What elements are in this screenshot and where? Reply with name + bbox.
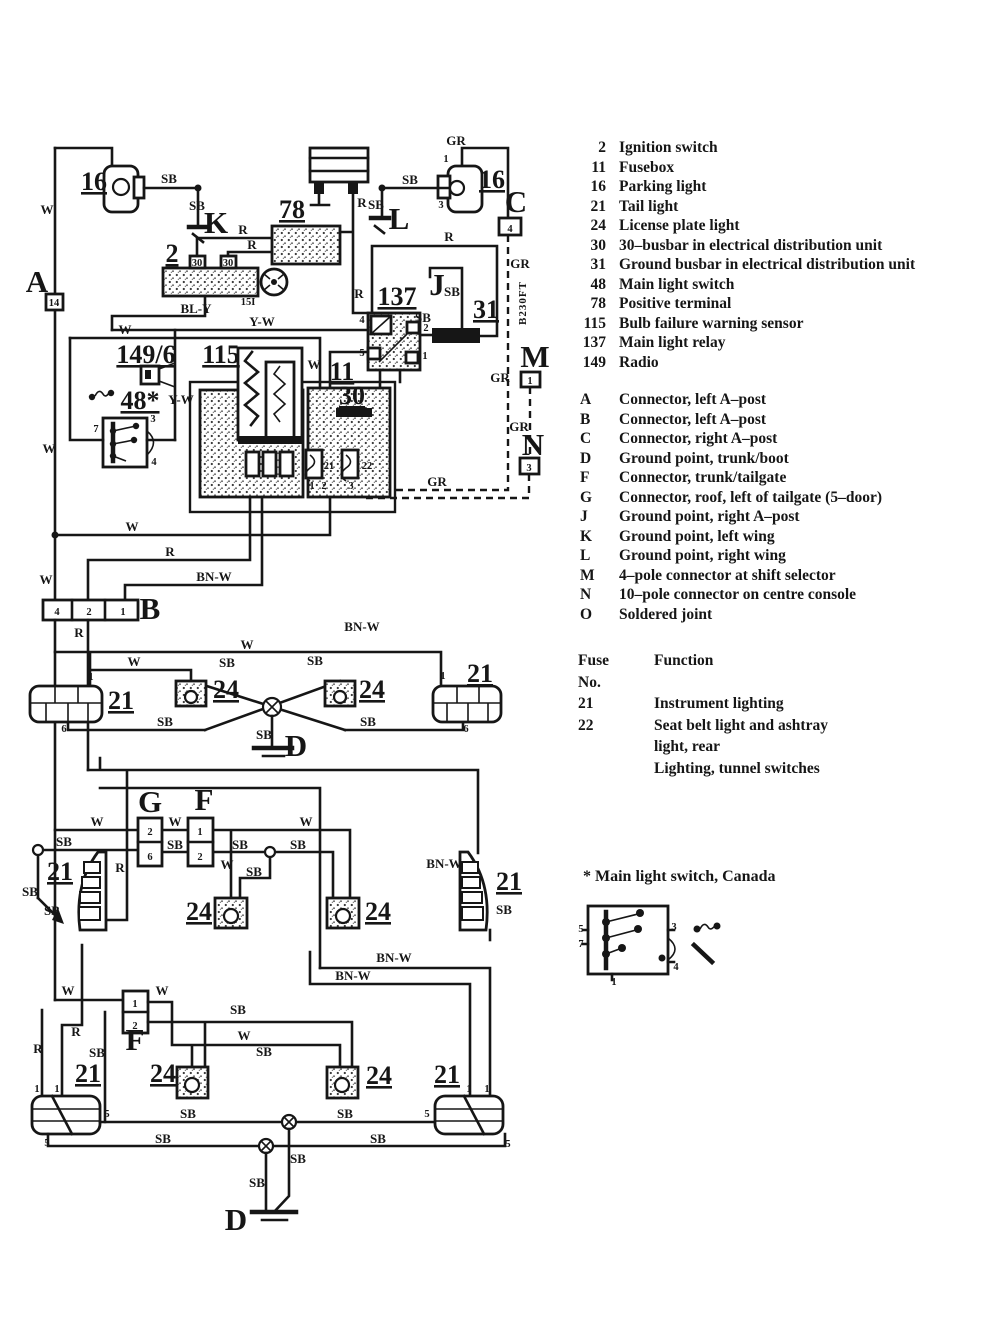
label-gr: GR bbox=[446, 133, 466, 148]
legend-connector-row-id: A bbox=[578, 390, 608, 410]
label-sb: SB bbox=[402, 172, 418, 187]
label-21: 21 bbox=[75, 1059, 101, 1088]
label-w: W bbox=[40, 572, 53, 587]
legend-connector-row: DGround point, trunk/boot bbox=[578, 449, 974, 469]
label-b230ft: B230FT bbox=[517, 281, 529, 325]
legend-connector-row: AConnector, left A–post bbox=[578, 390, 974, 410]
label-sb: SB bbox=[161, 171, 177, 186]
label-4: 4 bbox=[507, 224, 513, 235]
label-24: 24 bbox=[213, 675, 239, 704]
label-21: 21 bbox=[47, 857, 73, 886]
legend-component-row: 3030–busbar in electrical distribution u… bbox=[578, 236, 974, 256]
legend-component-row-id: 115 bbox=[578, 314, 606, 334]
legend-connector-row-label: Connector, left A–post bbox=[619, 390, 974, 410]
label-bn-w: BN-W bbox=[344, 619, 379, 634]
legend-component-row-label: Fusebox bbox=[619, 158, 974, 178]
legend-component-row: 78Positive terminal bbox=[578, 294, 974, 314]
label-21: 21 bbox=[324, 461, 335, 472]
legend-components: 2Ignition switch11Fusebox16Parking light… bbox=[578, 138, 974, 372]
legend-component-row-id: 11 bbox=[578, 158, 606, 178]
legend-component-row: 16Parking light bbox=[578, 177, 974, 197]
label-r: R bbox=[74, 625, 84, 640]
label-4: 4 bbox=[54, 607, 60, 618]
label-sb: SB bbox=[180, 1106, 196, 1121]
legend-connector-row-id: O bbox=[578, 605, 608, 625]
label-sb: SB bbox=[89, 1045, 105, 1060]
label-w: W bbox=[238, 1028, 251, 1043]
label-137: 137 bbox=[378, 282, 417, 311]
label-2: 2 bbox=[132, 1021, 137, 1032]
fuse-row: 22Seat belt light and ashtraylight, rear… bbox=[578, 715, 974, 780]
label-w: W bbox=[169, 814, 182, 829]
label-24: 24 bbox=[359, 675, 385, 704]
label-24: 24 bbox=[150, 1059, 176, 1088]
rear-row2 bbox=[33, 758, 490, 968]
function-col-header: Function bbox=[654, 650, 974, 693]
label-w: W bbox=[62, 983, 75, 998]
label-sb: SB bbox=[219, 655, 235, 670]
label-5: 5 bbox=[359, 348, 364, 359]
label-sb: SB bbox=[167, 837, 183, 852]
label-16: 16 bbox=[479, 165, 505, 194]
legend-connector-row-label: Connector, left A–post bbox=[619, 410, 974, 430]
label-r: R bbox=[33, 1041, 43, 1056]
label-30: 30 bbox=[192, 258, 203, 269]
label-4: 4 bbox=[151, 457, 157, 468]
label-sb: SB bbox=[56, 834, 72, 849]
label-14: 14 bbox=[49, 298, 60, 309]
wiring-diagram-page: 16SBSBKW2303015IBL-YRR78RRGR16SBSBLC413G… bbox=[0, 0, 981, 1331]
label-bl-y: BL-Y bbox=[180, 301, 212, 316]
legend-component-row-label: Tail light bbox=[619, 197, 974, 217]
label-24: 24 bbox=[365, 897, 391, 926]
label-w: W bbox=[119, 322, 132, 337]
label-y-w: Y-W bbox=[168, 392, 194, 407]
label-sb: SB bbox=[230, 1002, 246, 1017]
legend-component-row-id: 31 bbox=[578, 255, 606, 275]
label-1: 1 bbox=[132, 999, 137, 1010]
legend-connector-row: M4–pole connector at shift selector bbox=[578, 566, 974, 586]
legend-connector-row-label: Ground point, right wing bbox=[619, 546, 974, 566]
label-sb: SB bbox=[22, 884, 38, 899]
label-5: 5 bbox=[104, 1109, 109, 1120]
label-21: 21 bbox=[496, 867, 522, 896]
label-5: 5 bbox=[505, 1139, 510, 1150]
label-gr: GR bbox=[490, 370, 510, 385]
label-30: 30 bbox=[223, 258, 234, 269]
label-m: M bbox=[520, 339, 549, 374]
label-w: W bbox=[126, 519, 139, 534]
label-sb: SB bbox=[189, 198, 205, 213]
legend-connector-row-label: Connector, roof, left of tailgate (5–doo… bbox=[619, 488, 974, 508]
label-sb: SB bbox=[290, 837, 306, 852]
label-2: 2 bbox=[86, 607, 91, 618]
legend-component-row-id: 30 bbox=[578, 236, 606, 256]
legend-component-row-label: License plate light bbox=[619, 216, 974, 236]
legend-component-row-label: Main light relay bbox=[619, 333, 974, 353]
label-w: W bbox=[91, 814, 104, 829]
label-6: 6 bbox=[61, 724, 66, 735]
label-r: R bbox=[238, 222, 248, 237]
label-r: R bbox=[247, 237, 257, 252]
label-r: R bbox=[354, 286, 364, 301]
label-r: R bbox=[444, 229, 454, 244]
legend-component-row-label: Ignition switch bbox=[619, 138, 974, 158]
label-sb: SB bbox=[249, 1175, 265, 1190]
label-2: 2 bbox=[166, 239, 179, 268]
legend-footnote: * Main light switch, Canada bbox=[583, 868, 775, 886]
fuse-number: 22 bbox=[578, 715, 654, 780]
label-gr: GR bbox=[427, 474, 447, 489]
label-w: W bbox=[128, 654, 141, 669]
label-2: 2 bbox=[147, 827, 152, 838]
label-sb: SB bbox=[290, 1151, 306, 1166]
legend-connector-row: OSoldered joint bbox=[578, 605, 974, 625]
legend-connectors: AConnector, left A–postBConnector, left … bbox=[578, 390, 974, 624]
label-1: 1 bbox=[88, 672, 93, 683]
fuse-col-header-no: No. bbox=[578, 672, 654, 694]
label-1: 1 bbox=[34, 1084, 39, 1095]
label-gr: GR bbox=[510, 256, 530, 271]
legend-component-row-label: Ground busbar in electrical distribution… bbox=[619, 255, 974, 275]
legend-connector-row-id: K bbox=[578, 527, 608, 547]
label-2: 2 bbox=[321, 481, 326, 492]
legend-connector-row-label: 10–pole connector on centre console bbox=[619, 585, 974, 605]
fuse-table-header: Fuse No. Function bbox=[578, 650, 974, 693]
label-sb: SB bbox=[157, 714, 173, 729]
label-sb: SB bbox=[360, 714, 376, 729]
legend-connector-row-label: Ground point, left wing bbox=[619, 527, 974, 547]
legend-connector-row-label: Connector, right A–post bbox=[619, 429, 974, 449]
legend-component-row: 21Tail light bbox=[578, 197, 974, 217]
fuse-col-header: Fuse bbox=[578, 650, 654, 672]
legend-connector-row-label: Soldered joint bbox=[619, 605, 974, 625]
label-w: W bbox=[43, 441, 56, 456]
legend-connector-row: GConnector, roof, left of tailgate (5–do… bbox=[578, 488, 974, 508]
legend-component-row-label: 30–busbar in electrical distribution uni… bbox=[619, 236, 974, 256]
label-sb: SB bbox=[370, 1131, 386, 1146]
legend-component-row: 24License plate light bbox=[578, 216, 974, 236]
legend-connector-row-id: J bbox=[578, 507, 608, 527]
label-1: 1 bbox=[484, 1084, 489, 1095]
legend-connector-row-label: Ground point, trunk/boot bbox=[619, 449, 974, 469]
label-l: L bbox=[389, 201, 410, 236]
label-n: N bbox=[522, 427, 544, 462]
legend-connector-row-id: M bbox=[578, 566, 608, 586]
legend-connector-row-id: F bbox=[578, 468, 608, 488]
legend-component-row-label: Positive terminal bbox=[619, 294, 974, 314]
legend-component-row-id: 21 bbox=[578, 197, 606, 217]
label-78: 78 bbox=[279, 195, 305, 224]
legend-connector-row: LGround point, right wing bbox=[578, 546, 974, 566]
legend-connector-row-id: G bbox=[578, 488, 608, 508]
legend-connector-row-label: Ground point, right A–post bbox=[619, 507, 974, 527]
label-15i: 15I bbox=[241, 297, 256, 308]
legend-component-row-id: 137 bbox=[578, 333, 606, 353]
label-d: D bbox=[285, 728, 307, 763]
legend-component-row-id: 149 bbox=[578, 353, 606, 373]
label-1: 1 bbox=[309, 481, 314, 492]
label-bn-w: BN-W bbox=[376, 950, 411, 965]
label-2: 2 bbox=[423, 323, 428, 334]
label-5: 5 bbox=[44, 1138, 49, 1149]
legend-connector-row-label: 4–pole connector at shift selector bbox=[619, 566, 974, 586]
legend-component-row: 2Ignition switch bbox=[578, 138, 974, 158]
main-light-relay-137 bbox=[330, 246, 497, 390]
legend-component-row-label: Bulb failure warning sensor bbox=[619, 314, 974, 334]
legend-component-row-id: 48 bbox=[578, 275, 606, 295]
label-21: 21 bbox=[108, 686, 134, 715]
label-149-6: 149/6 bbox=[116, 340, 175, 369]
label-r: R bbox=[165, 544, 175, 559]
legend-connector-row-id: B bbox=[578, 410, 608, 430]
label-sb: SB bbox=[496, 902, 512, 917]
legend-connector-row: CConnector, right A–post bbox=[578, 429, 974, 449]
fuse-function: Instrument lighting bbox=[654, 693, 974, 715]
fuse-number: 21 bbox=[578, 693, 654, 715]
legend-connector-row-label: Connector, trunk/tailgate bbox=[619, 468, 974, 488]
legend-connector-row-id: N bbox=[578, 585, 608, 605]
label-sb: SB bbox=[155, 1131, 171, 1146]
label-d: D bbox=[225, 1202, 247, 1237]
label-4: 4 bbox=[359, 315, 365, 326]
label-r: R bbox=[71, 1024, 81, 1039]
label-g: G bbox=[138, 784, 162, 819]
label-1: 1 bbox=[527, 376, 532, 387]
label-1: 1 bbox=[120, 607, 125, 618]
label-3: 3 bbox=[526, 463, 531, 474]
label-1: 1 bbox=[440, 671, 445, 682]
legend-connector-row: JGround point, right A–post bbox=[578, 507, 974, 527]
label-w: W bbox=[241, 637, 254, 652]
label-24: 24 bbox=[366, 1061, 392, 1090]
label-1: 1 bbox=[197, 827, 202, 838]
legend-connector-row: FConnector, trunk/tailgate bbox=[578, 468, 974, 488]
rear-row1 bbox=[30, 620, 501, 1000]
label-3: 3 bbox=[438, 200, 443, 211]
legend-component-row: 31Ground busbar in electrical distributi… bbox=[578, 255, 974, 275]
label-6: 6 bbox=[147, 852, 152, 863]
label-w: W bbox=[300, 814, 313, 829]
label-sb: SB bbox=[256, 1044, 272, 1059]
legend-component-row-id: 16 bbox=[578, 177, 606, 197]
label-1: 1 bbox=[422, 351, 427, 362]
label-a: A bbox=[26, 264, 49, 299]
label-r: R bbox=[357, 195, 367, 210]
legend-component-row: 115Bulb failure warning sensor bbox=[578, 314, 974, 334]
label-sb: SB bbox=[44, 903, 60, 918]
legend-connector-row-id: C bbox=[578, 429, 608, 449]
label-k: K bbox=[204, 205, 228, 240]
fuse-row: 21Instrument lighting bbox=[578, 693, 974, 715]
label-48-: 48* bbox=[121, 386, 160, 415]
legend-component-row-label: Radio bbox=[619, 353, 974, 373]
legend-component-row-label: Main light switch bbox=[619, 275, 974, 295]
legend-component-row: 137Main light relay bbox=[578, 333, 974, 353]
label-sb: SB bbox=[232, 837, 248, 852]
legend-component-row: 11Fusebox bbox=[578, 158, 974, 178]
label-22: 22 bbox=[362, 461, 373, 472]
label-21: 21 bbox=[467, 659, 493, 688]
label-sb: SB bbox=[307, 653, 323, 668]
label-c: C bbox=[505, 184, 527, 219]
label-y-w: Y-W bbox=[249, 314, 275, 329]
label-j: J bbox=[429, 267, 445, 302]
label-sb: SB bbox=[256, 727, 272, 742]
legend-connector-row: KGround point, left wing bbox=[578, 527, 974, 547]
sensor-115-fusebox-11 bbox=[190, 348, 395, 512]
legend-connector-row: N10–pole connector on centre console bbox=[578, 585, 974, 605]
label-21: 21 bbox=[434, 1060, 460, 1089]
label-6: 6 bbox=[463, 724, 468, 735]
label-w: W bbox=[41, 202, 54, 217]
label-bn-w: BN-W bbox=[426, 856, 461, 871]
legend-connector-row-id: D bbox=[578, 449, 608, 469]
legend-component-row-id: 24 bbox=[578, 216, 606, 236]
legend-component-row-label: Parking light bbox=[619, 177, 974, 197]
label-31: 31 bbox=[473, 295, 499, 324]
label-7: 7 bbox=[93, 424, 98, 435]
fuse-function: Seat belt light and ashtraylight, rearLi… bbox=[654, 715, 974, 780]
label-30: 30 bbox=[339, 381, 365, 410]
legend-component-row: 149Radio bbox=[578, 353, 974, 373]
label-24: 24 bbox=[186, 897, 212, 926]
label-1: 1 bbox=[443, 154, 448, 165]
label-3: 3 bbox=[348, 481, 353, 492]
label-115: 115 bbox=[202, 340, 240, 369]
label-r: R bbox=[115, 860, 125, 875]
legend-panel: 2Ignition switch11Fusebox16Parking light… bbox=[570, 0, 978, 1331]
legend-component-row-id: 78 bbox=[578, 294, 606, 314]
legend-connector-row: BConnector, left A–post bbox=[578, 410, 974, 430]
legend-connector-row-id: L bbox=[578, 546, 608, 566]
label-sb: SB bbox=[246, 864, 262, 879]
label-bn-w: BN-W bbox=[196, 569, 231, 584]
fuse-rows: 21Instrument lighting22Seat belt light a… bbox=[578, 693, 974, 779]
legend-fuse-table: Fuse No. Function 21Instrument lighting2… bbox=[578, 650, 974, 779]
label-1: 1 bbox=[466, 1084, 471, 1095]
label-1: 1 bbox=[54, 1084, 59, 1095]
label-w: W bbox=[156, 983, 169, 998]
legend-component-row-id: 2 bbox=[578, 138, 606, 158]
label-5: 5 bbox=[424, 1109, 429, 1120]
label-3: 3 bbox=[150, 414, 155, 425]
label-bn-w: BN-W bbox=[335, 968, 370, 983]
label-w: W bbox=[308, 357, 321, 372]
label-sb: SB bbox=[368, 197, 384, 212]
label-2: 2 bbox=[197, 852, 202, 863]
label-sb: SB bbox=[337, 1106, 353, 1121]
label-f: F bbox=[195, 782, 214, 817]
label-16: 16 bbox=[81, 167, 107, 196]
label-b: B bbox=[140, 591, 161, 626]
legend-component-row: 48Main light switch bbox=[578, 275, 974, 295]
label-w: W bbox=[221, 857, 234, 872]
label-sb: SB bbox=[444, 284, 460, 299]
